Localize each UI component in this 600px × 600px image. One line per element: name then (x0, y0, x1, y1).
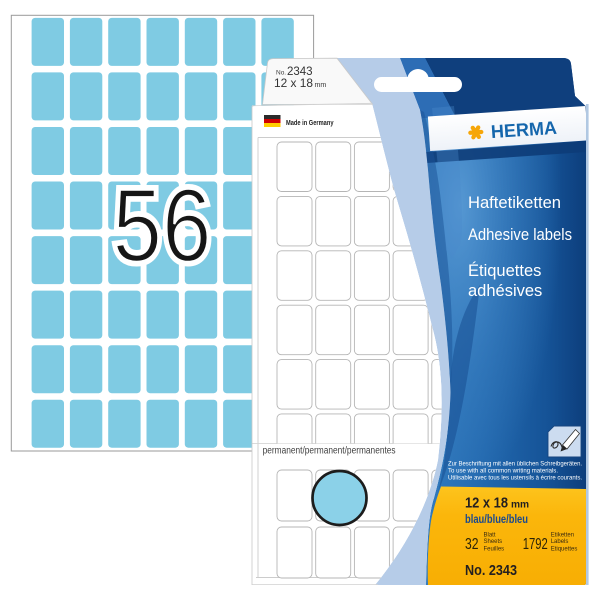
svg-text:Utilisable avec tous les usten: Utilisable avec tous les ustensils à écr… (448, 474, 582, 481)
svg-text:Etiquettes: Etiquettes (551, 546, 578, 552)
svg-text:12 x 18: 12 x 18 (274, 76, 313, 90)
svg-text:Etiketten: Etiketten (551, 533, 574, 539)
svg-text:adhésives: adhésives (468, 282, 542, 300)
svg-text:mm: mm (315, 82, 327, 89)
svg-text:Made in Germany: Made in Germany (286, 118, 334, 127)
svg-text:56: 56 (113, 168, 212, 284)
svg-text:permanent/permanent/permanente: permanent/permanent/permanentes (263, 446, 396, 457)
svg-text:12 x 18: 12 x 18 (465, 496, 508, 512)
svg-text:Adhesive labels: Adhesive labels (468, 226, 572, 244)
svg-text:1792: 1792 (523, 536, 548, 553)
svg-text:To use with all common writing: To use with all common writing materials… (448, 467, 558, 474)
svg-text:HERMA: HERMA (490, 117, 557, 142)
svg-text:Étiquettes: Étiquettes (468, 261, 541, 280)
svg-text:Feuilles: Feuilles (484, 546, 505, 552)
svg-text:Haftetiketten: Haftetiketten (468, 194, 561, 212)
svg-text:Blatt: Blatt (484, 533, 496, 539)
svg-text:blau/blue/bleu: blau/blue/bleu (465, 512, 528, 526)
svg-text:Sheets: Sheets (484, 539, 503, 545)
svg-text:mm: mm (511, 500, 529, 511)
svg-text:No. 2343: No. 2343 (465, 563, 517, 579)
svg-text:Zur Beschriftung mit allen übl: Zur Beschriftung mit allen üblichen Schr… (448, 460, 582, 467)
svg-text:32: 32 (465, 536, 479, 553)
svg-text:Labels: Labels (551, 539, 569, 545)
